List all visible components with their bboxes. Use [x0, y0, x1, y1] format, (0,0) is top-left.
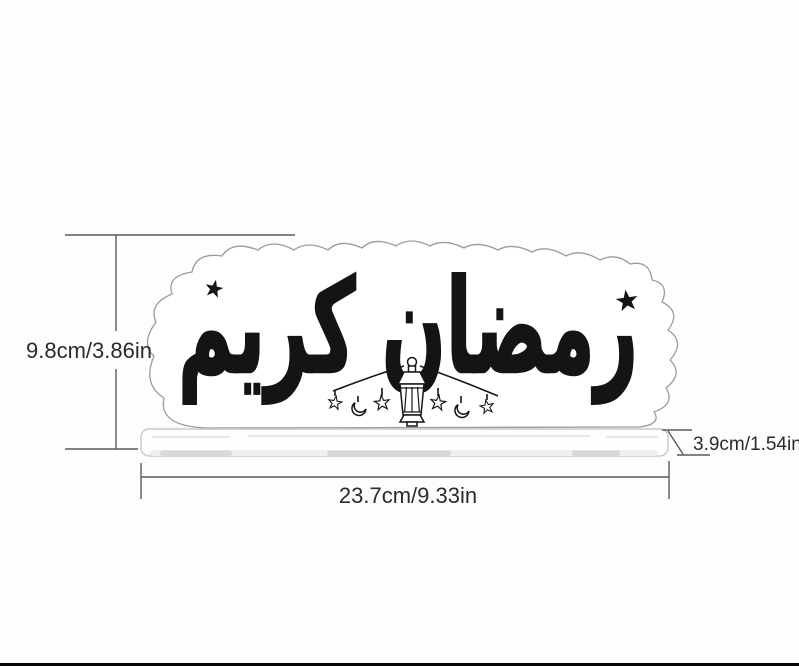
width-dimension: 23.7cm/9.33in [141, 461, 669, 508]
base-front-band-segment [160, 451, 232, 457]
depth-dimension: 3.9cm/1.54in [662, 430, 799, 455]
height-dimension-label: 9.8cm/3.86in [26, 338, 152, 363]
base-plate [141, 429, 668, 456]
depth-dimension-label: 3.9cm/1.54in [693, 434, 799, 455]
width-dimension-label: 23.7cm/9.33in [339, 483, 477, 508]
base-front-band-segment [572, 451, 620, 457]
product-dimension-diagram: رمضان كريم [0, 0, 799, 666]
base-front-band-segment [327, 451, 451, 457]
diagram-canvas: رمضان كريم [0, 0, 799, 666]
